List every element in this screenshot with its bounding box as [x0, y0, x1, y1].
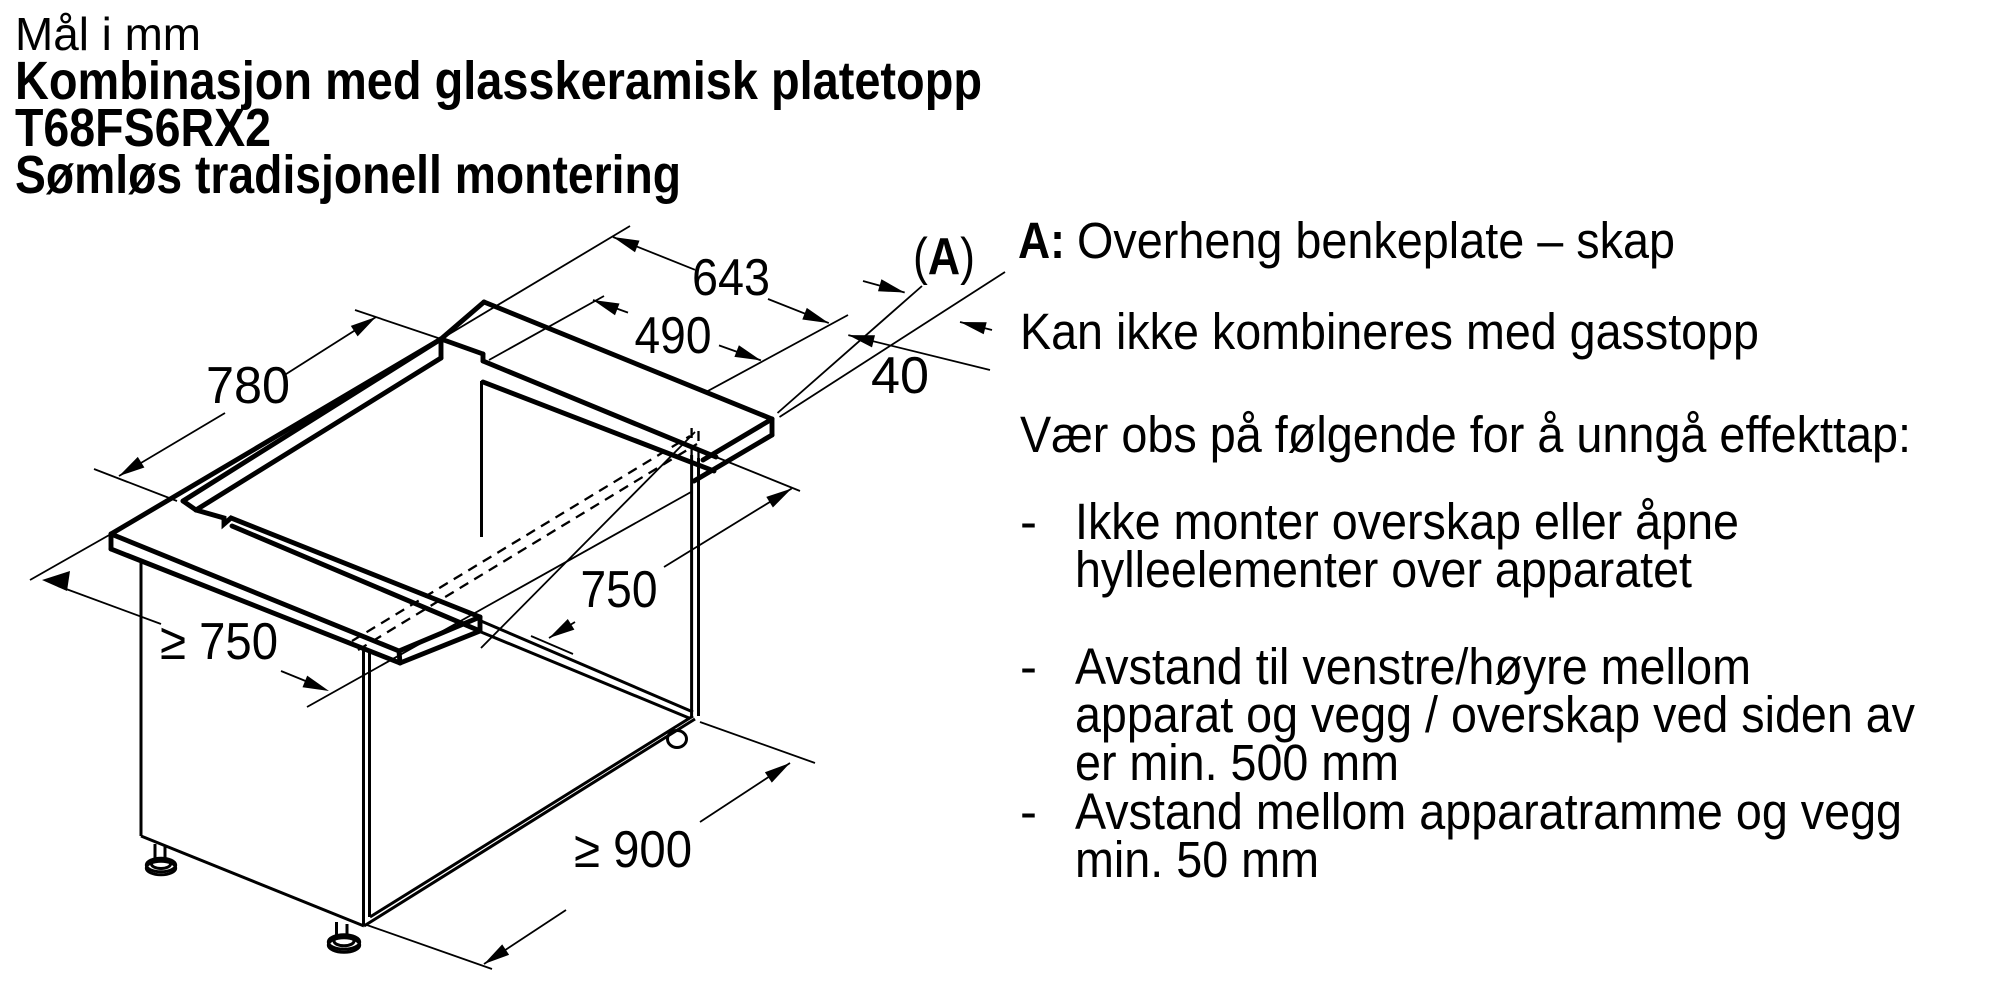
svg-text:hylleelementer over apparatet: hylleelementer over apparatet	[1075, 541, 1692, 598]
svg-text:-: -	[1020, 493, 1037, 550]
svg-text:643: 643	[692, 249, 770, 307]
svg-text:490: 490	[635, 307, 712, 365]
svg-text:40: 40	[871, 347, 929, 405]
svg-text:-: -	[1020, 638, 1037, 695]
svg-text:≥ 750: ≥ 750	[160, 613, 278, 671]
svg-text:(A): (A)	[913, 228, 975, 286]
svg-text:Vær obs på følgende for å unng: Vær obs på følgende for å unngå effektta…	[1020, 406, 1911, 463]
svg-text:Kan ikke kombineres med gassto: Kan ikke kombineres med gasstopp	[1020, 303, 1759, 360]
svg-text:780: 780	[206, 357, 290, 415]
svg-text:Overheng benkeplate – skap: Overheng benkeplate – skap	[1077, 212, 1675, 269]
svg-text:750: 750	[581, 561, 658, 619]
svg-text:-: -	[1020, 783, 1037, 840]
svg-text:Sømløs tradisjonell montering: Sømløs tradisjonell montering	[15, 145, 681, 205]
svg-text:≥ 900: ≥ 900	[574, 821, 692, 879]
svg-text:A:: A:	[1018, 212, 1065, 269]
svg-text:min. 50 mm: min. 50 mm	[1075, 831, 1319, 888]
